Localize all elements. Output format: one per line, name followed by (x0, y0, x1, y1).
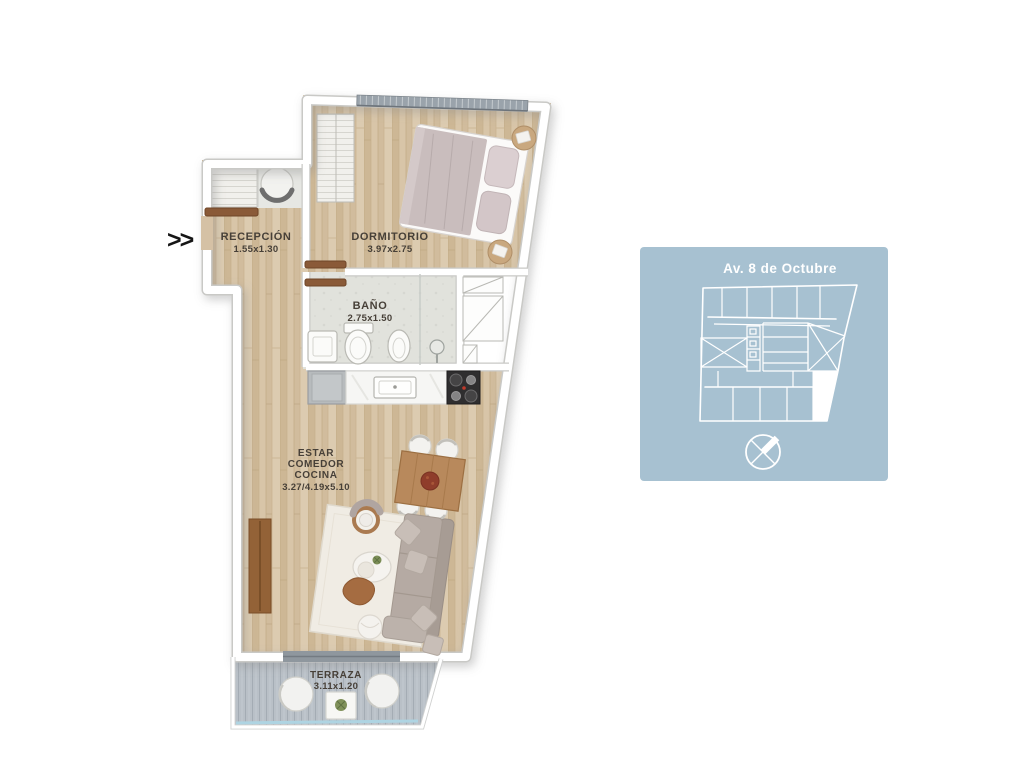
label-terraza-dims: 3.11x1.20 (314, 681, 358, 692)
tv-stand (249, 519, 271, 613)
wardrobe (317, 114, 354, 202)
nightstand (488, 240, 512, 264)
armchair (353, 503, 380, 532)
dining-table (395, 451, 466, 511)
terrace-chair (365, 674, 399, 708)
nightstand (512, 126, 536, 150)
apartment-plan: RECEPCIÓN 1.55x1.30 DORMITORIO 3.97x2.75… (167, 95, 551, 727)
pillow (483, 145, 519, 190)
terrace-sliding-door (283, 651, 400, 662)
label-estar-line1: ESTAR (298, 448, 334, 459)
location-key-plan: Av. 8 de Octubre (640, 247, 888, 481)
terrace-table (326, 692, 356, 719)
floorplan-page: RECEPCIÓN 1.55x1.30 DORMITORIO 3.97x2.75… (0, 0, 1024, 768)
pouf (358, 615, 382, 639)
terrace-chair (279, 677, 313, 711)
label-estar-dims: 3.27/4.19x5.10 (282, 482, 350, 493)
bathroom-sink (308, 331, 337, 362)
label-recepcion-dims: 1.55x1.30 (234, 244, 279, 255)
key-plan-panel (640, 247, 888, 481)
pillow (475, 190, 511, 235)
bidet (388, 330, 410, 362)
bed (399, 124, 529, 246)
kitchen (308, 371, 480, 404)
glass-railing (236, 721, 418, 723)
label-bano-dims: 2.75x1.50 (348, 313, 393, 324)
street-label: Av. 8 de Octubre (723, 261, 837, 276)
label-dormitorio-name: DORMITORIO (351, 231, 428, 243)
lounge-area (310, 503, 455, 656)
label-estar-line3: COCINA (294, 470, 337, 481)
label-recepcion-name: RECEPCIÓN (221, 230, 292, 243)
floorplan-image: RECEPCIÓN 1.55x1.30 DORMITORIO 3.97x2.75… (0, 0, 1024, 768)
label-dormitorio-dims: 3.97x2.75 (368, 244, 413, 255)
laundry-area (209, 166, 302, 208)
label-bano-name: BAÑO (353, 299, 388, 312)
label-estar-line2: COMEDOR (288, 459, 345, 470)
label-terraza-name: TERRAZA (310, 670, 362, 681)
shower-head (430, 340, 444, 354)
entrance-marker: >> (167, 226, 194, 254)
